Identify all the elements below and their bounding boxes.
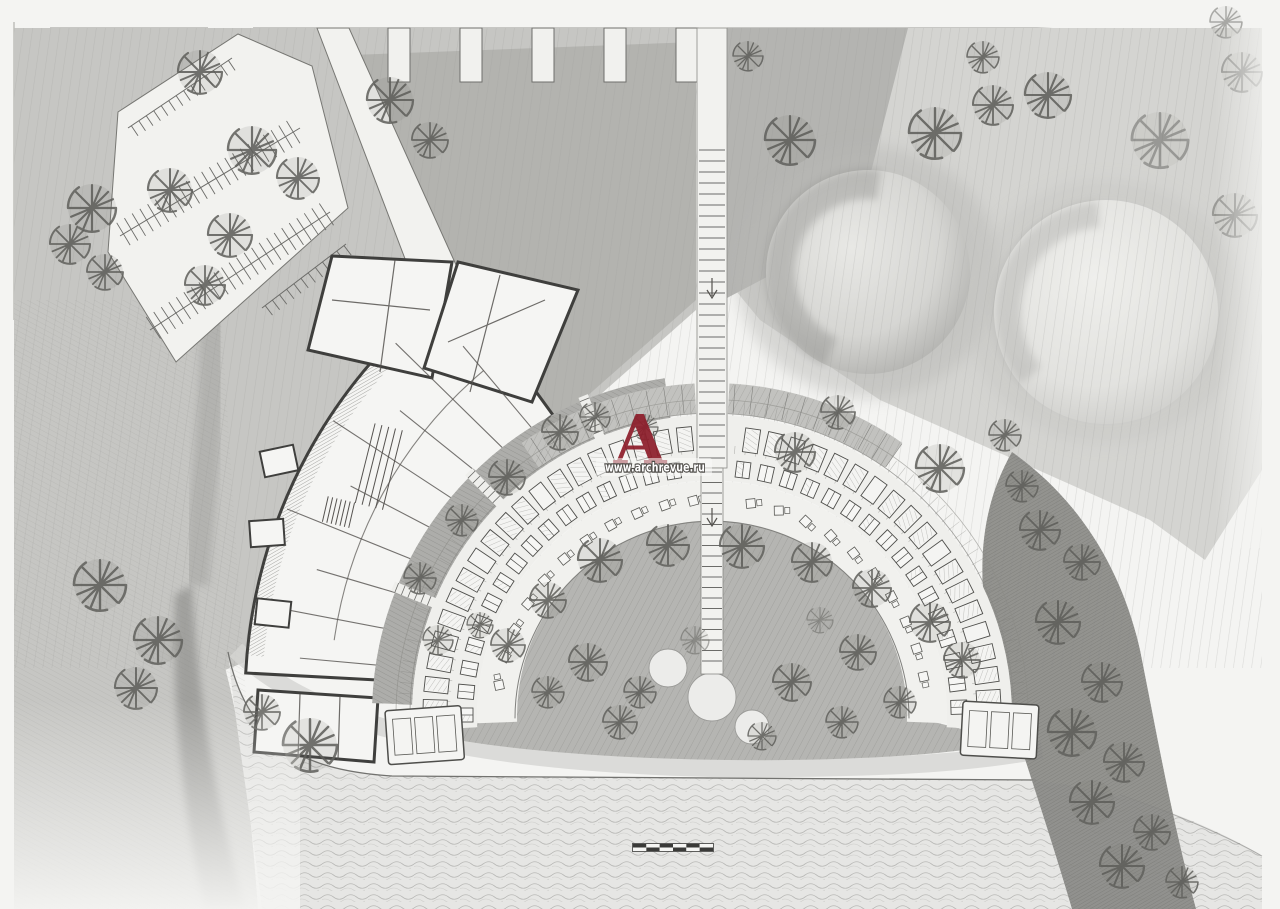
terrace-furniture (774, 506, 790, 515)
tree-icon (909, 107, 961, 159)
tree-icon (1134, 814, 1170, 850)
tree-icon (185, 265, 225, 305)
bottom-left-fade (0, 700, 300, 909)
chalet-unit (460, 660, 478, 677)
tree-icon (1166, 866, 1198, 898)
tree-icon (277, 157, 319, 199)
terrace-furniture-square (774, 506, 783, 515)
tree-icon (491, 628, 525, 662)
tree-icon (821, 395, 855, 429)
tree-icon (773, 663, 811, 701)
tree-icon (775, 432, 815, 472)
tree-icon (1025, 72, 1071, 118)
chalet-end-block-outline (385, 706, 465, 765)
scale-bar (633, 844, 714, 852)
chalet-unit (424, 676, 449, 694)
chalet-unit (757, 465, 774, 484)
entry-axis-path (697, 28, 727, 674)
scale-bar-segment (673, 844, 686, 848)
tree-icon (807, 607, 833, 633)
tree-icon (720, 524, 764, 568)
tree-icon (404, 562, 436, 594)
tree-icon (1082, 662, 1122, 702)
chalet-end-block (385, 706, 465, 765)
terrace-furniture-square (785, 507, 790, 513)
tree-icon (624, 676, 656, 708)
scale-bar-segment (646, 844, 659, 848)
building-annex-room (255, 598, 292, 627)
tree-icon (989, 419, 1021, 451)
tree-icon (973, 85, 1013, 125)
chalet-unit (676, 427, 693, 452)
tree-icon (50, 224, 90, 264)
tree-icon (681, 626, 709, 654)
tree-icon (826, 706, 858, 738)
top-edge-building (532, 28, 554, 82)
tree-icon (748, 722, 776, 750)
scale-bar-segment (686, 848, 699, 852)
scale-bar-segment (686, 844, 699, 848)
tree-icon (1104, 742, 1144, 782)
chalet-unit-roof (678, 428, 692, 450)
tree-icon (967, 41, 999, 73)
chalet-end-block (960, 701, 1039, 759)
site-plan-drawing: A www.archrevue.ru (0, 0, 1280, 909)
tree-icon (367, 77, 413, 123)
chalet-unit (742, 428, 760, 454)
tree-icon (792, 542, 832, 582)
clearing-circle (688, 673, 736, 721)
tree-icon (1070, 780, 1114, 824)
scale-bar-segment (660, 844, 673, 848)
terrace-furniture-square (746, 499, 756, 509)
tree-icon (1020, 510, 1060, 550)
scale-bar-segment (646, 848, 659, 852)
tree-icon (1132, 112, 1188, 168)
tree-icon (467, 612, 493, 638)
scale-bar-segment (660, 848, 673, 852)
building-annex-room (249, 519, 285, 547)
tree-icon (1006, 470, 1038, 502)
tree-icon (228, 126, 276, 174)
tree-icon (134, 616, 182, 664)
tree-icon (578, 538, 622, 582)
tree-icon (603, 705, 637, 739)
terrace-furniture-square (918, 671, 929, 682)
scale-bar-segment (700, 844, 713, 848)
top-edge-building (676, 28, 698, 82)
chalet-unit-roof (426, 678, 448, 692)
tree-icon (733, 41, 763, 71)
right-edge-fade (1215, 28, 1280, 548)
terrace-furniture-square (922, 682, 929, 688)
tree-icon (542, 414, 578, 450)
tree-icon (423, 625, 453, 655)
tree-icon (765, 115, 815, 165)
top-edge-building (388, 28, 410, 82)
terrace-furniture-square (494, 680, 505, 691)
entry-path-band (697, 28, 727, 468)
tree-icon (853, 569, 891, 607)
watermark-url-text: www.archrevue.ru (605, 460, 705, 475)
terrace-furniture-square (688, 495, 699, 506)
tree-icon (647, 524, 689, 566)
tree-icon (208, 213, 252, 257)
tree-icon (1064, 544, 1100, 580)
tree-icon (840, 634, 876, 670)
tree-icon (569, 643, 607, 681)
tree-icon (532, 676, 564, 708)
terrace-furniture-square (756, 499, 762, 505)
tree-icon (580, 402, 610, 432)
scale-bar-segment (633, 844, 646, 848)
tree-icon (74, 559, 126, 611)
site-plan-sheet: A www.archrevue.ru (0, 0, 1280, 909)
tree-icon (1036, 600, 1080, 644)
chalet-unit (735, 461, 751, 479)
tree-icon (1048, 708, 1096, 756)
tree-icon (884, 686, 916, 718)
top-edge-building (604, 28, 626, 82)
tree-icon (87, 254, 123, 290)
tree-icon (178, 50, 222, 94)
tree-icon (910, 602, 950, 642)
tree-icon (530, 582, 566, 618)
scale-bar-segment (700, 848, 713, 852)
top-edge-building (460, 28, 482, 82)
terrace-furniture-square (494, 674, 501, 680)
clearing-circle (649, 649, 687, 687)
tree-icon (916, 444, 964, 492)
tree-icon (1100, 844, 1144, 888)
scale-bar-segment (673, 848, 686, 852)
building-annex-room (260, 445, 299, 478)
chalet-unit (457, 684, 474, 699)
tree-icon (148, 168, 192, 212)
tree-icon (446, 504, 478, 536)
tree-icon (944, 642, 980, 678)
tree-icon (489, 459, 525, 495)
tree-icon (412, 122, 448, 158)
chalet-end-block-outline (960, 701, 1039, 759)
scale-bar-segment (633, 848, 646, 852)
